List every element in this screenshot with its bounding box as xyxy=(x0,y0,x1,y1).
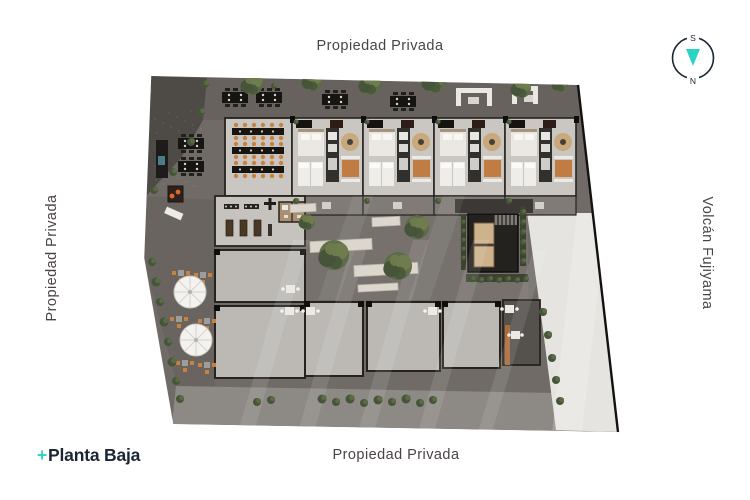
boundary-label-left: Propiedad Privada xyxy=(44,195,60,322)
compass-south-label: S xyxy=(690,33,696,43)
boundary-label-right: Volcán Fujiyama xyxy=(699,196,715,309)
logo-text: Planta Baja xyxy=(48,445,140,465)
compass: S N xyxy=(663,27,723,89)
logo-plus-icon: + xyxy=(37,445,47,465)
compass-north-label: N xyxy=(690,76,696,86)
plan-title-logo: +Planta Baja xyxy=(37,445,140,466)
floor-plan-render xyxy=(0,0,750,500)
boundary-label-top: Propiedad Privada xyxy=(0,38,750,54)
compass-needle-icon xyxy=(686,49,700,66)
plan-clipped xyxy=(143,69,618,432)
